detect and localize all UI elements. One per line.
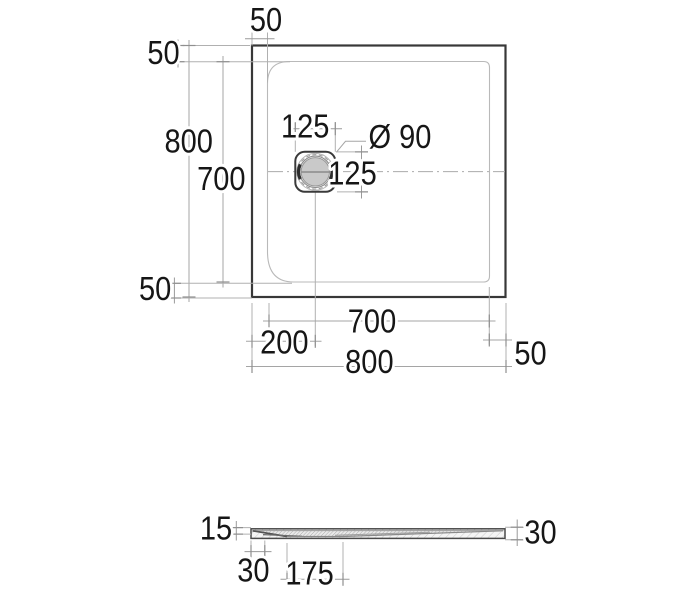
svg-text:15: 15 bbox=[200, 510, 232, 547]
svg-text:125: 125 bbox=[281, 108, 329, 145]
svg-text:30: 30 bbox=[237, 552, 269, 589]
svg-text:30: 30 bbox=[524, 514, 556, 551]
svg-text:50: 50 bbox=[250, 1, 282, 38]
svg-text:125: 125 bbox=[328, 155, 376, 192]
svg-text:50: 50 bbox=[147, 34, 179, 71]
svg-text:800: 800 bbox=[345, 343, 393, 380]
svg-text:700: 700 bbox=[197, 160, 245, 197]
svg-text:50: 50 bbox=[514, 335, 546, 372]
svg-text:700: 700 bbox=[348, 303, 396, 340]
svg-text:175: 175 bbox=[285, 555, 333, 592]
svg-text:Ø 90: Ø 90 bbox=[369, 118, 432, 155]
svg-text:800: 800 bbox=[164, 123, 212, 160]
svg-text:50: 50 bbox=[139, 270, 171, 307]
svg-text:200: 200 bbox=[260, 324, 308, 361]
